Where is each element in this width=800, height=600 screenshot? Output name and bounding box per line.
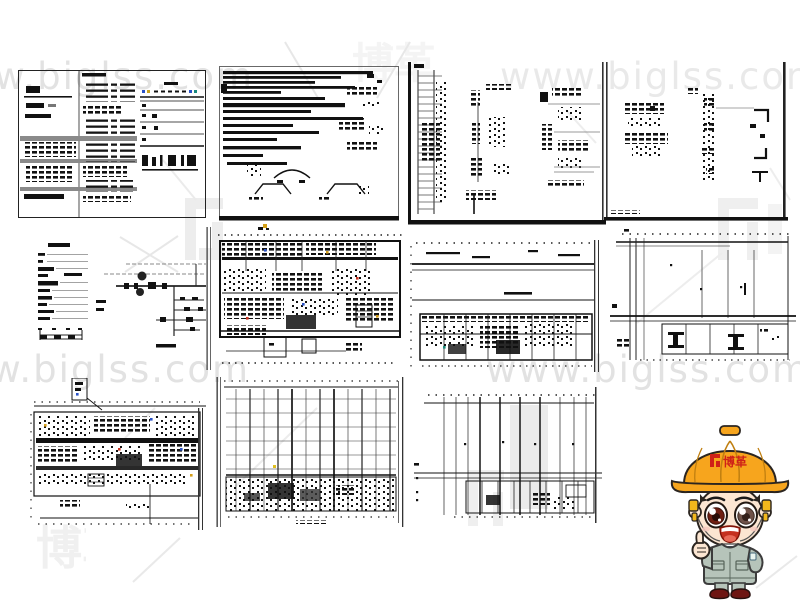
bogee-engineer-mascot: 博革 [662,420,798,600]
sheet-01-specification-table [18,70,206,218]
sheet-05-legend [38,243,90,347]
sheet-03-riser-schematic [408,62,606,226]
i-beam-symbol-2 [728,334,744,350]
sheet-08-long-floor-plan [408,240,600,372]
hard-hat-icon: 博革 [672,426,788,492]
sheet-04-details [604,62,788,222]
sheet-11-grid-plan [216,377,408,527]
sheet-12-grid-plan [414,387,602,523]
sheet-10-dense-floor-plan [30,378,210,530]
sheet-02-notes-details [219,66,399,224]
scale-bar [38,328,82,340]
i-beam-symbol [668,332,684,348]
sheet-09-partial-grid-plan [610,228,796,364]
sheet-06-system-schematic [96,252,208,350]
sheet-07-floor-plan [206,227,406,370]
helmet-brand-label: 博革 [723,454,747,469]
cad-drawing-collage: www.biglss.com www.biglss.com www.biglss… [0,0,800,600]
